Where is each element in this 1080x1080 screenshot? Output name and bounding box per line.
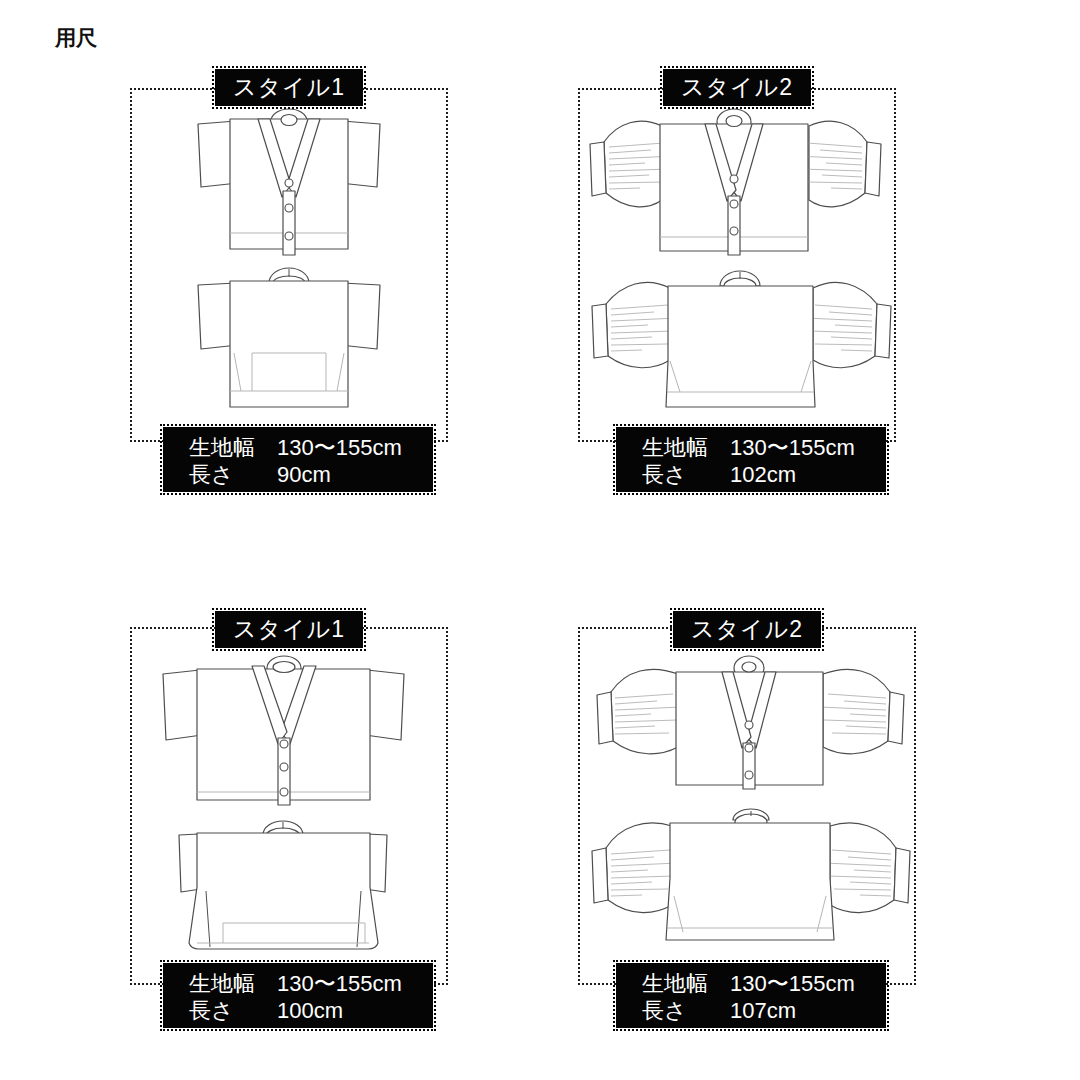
fabric-width-label: 生地幅 bbox=[642, 970, 730, 997]
balloon-sleeve-right bbox=[824, 823, 910, 913]
garment-front-drawing bbox=[160, 652, 410, 820]
garment-back-drawing bbox=[578, 264, 898, 416]
panel-style1-short: スタイル1 bbox=[130, 69, 448, 493]
balloon-sleeve-left bbox=[597, 669, 681, 753]
balloon-sleeve-right bbox=[805, 282, 891, 367]
fabric-info-box: 生地幅 130〜155cm 長さ 90cm bbox=[163, 427, 433, 492]
length-value: 100cm bbox=[277, 997, 433, 1024]
panel-style1-long: スタイル1 bbox=[130, 611, 448, 1035]
fabric-info-box: 生地幅 130〜155cm 長さ 102cm bbox=[616, 427, 886, 492]
fabric-width-value: 130〜155cm bbox=[277, 970, 433, 997]
fabric-info-box: 生地幅 130〜155cm 長さ 100cm bbox=[163, 963, 433, 1028]
page-title: 用尺 bbox=[55, 24, 97, 52]
style-label: スタイル1 bbox=[215, 69, 363, 106]
style-label: スタイル2 bbox=[673, 611, 821, 648]
garment-back-drawing bbox=[177, 814, 389, 962]
garment-front-drawing bbox=[578, 106, 898, 258]
panel-style2-long: スタイル2 bbox=[578, 611, 916, 1035]
garment-back-drawing bbox=[580, 808, 922, 968]
panel-style2-short: スタイル2 bbox=[578, 69, 896, 493]
style-label-text: スタイル1 bbox=[233, 72, 345, 103]
body bbox=[666, 286, 815, 407]
length-label: 長さ bbox=[642, 997, 730, 1024]
garment-front-drawing bbox=[581, 652, 920, 812]
fabric-width-label: 生地幅 bbox=[642, 434, 730, 461]
placket bbox=[283, 191, 295, 255]
length-value: 90cm bbox=[277, 461, 433, 488]
balloon-sleeve-left bbox=[592, 823, 678, 913]
fabric-info-box: 生地幅 130〜155cm 長さ 107cm bbox=[616, 963, 886, 1028]
length-value: 102cm bbox=[730, 461, 886, 488]
body bbox=[189, 833, 378, 949]
hanger-loop bbox=[281, 115, 297, 126]
balloon-sleeve-right bbox=[820, 669, 904, 753]
length-label: 長さ bbox=[642, 461, 730, 488]
fabric-width-value: 130〜155cm bbox=[277, 434, 433, 461]
style-label-text: スタイル2 bbox=[681, 72, 793, 103]
hanger-loop bbox=[742, 662, 756, 672]
balloon-sleeve-left bbox=[592, 282, 678, 367]
fabric-width-label: 生地幅 bbox=[189, 970, 277, 997]
style-label: スタイル2 bbox=[663, 69, 811, 106]
garment-back-drawing bbox=[194, 265, 384, 413]
hanger-loop bbox=[273, 662, 295, 673]
fabric-width-label: 生地幅 bbox=[189, 434, 277, 461]
body bbox=[666, 823, 834, 940]
fabric-width-value: 130〜155cm bbox=[730, 434, 886, 461]
length-label: 長さ bbox=[189, 461, 277, 488]
length-value: 107cm bbox=[730, 997, 886, 1024]
garment-front-drawing bbox=[194, 107, 384, 255]
fabric-width-value: 130〜155cm bbox=[730, 970, 886, 997]
style-label: スタイル1 bbox=[215, 611, 363, 648]
hanger-loop bbox=[726, 116, 742, 127]
style-label-text: スタイル2 bbox=[691, 614, 803, 645]
balloon-sleeve-right bbox=[796, 121, 881, 207]
length-label: 長さ bbox=[189, 997, 277, 1024]
body bbox=[230, 281, 348, 407]
style-label-text: スタイル1 bbox=[233, 614, 345, 645]
